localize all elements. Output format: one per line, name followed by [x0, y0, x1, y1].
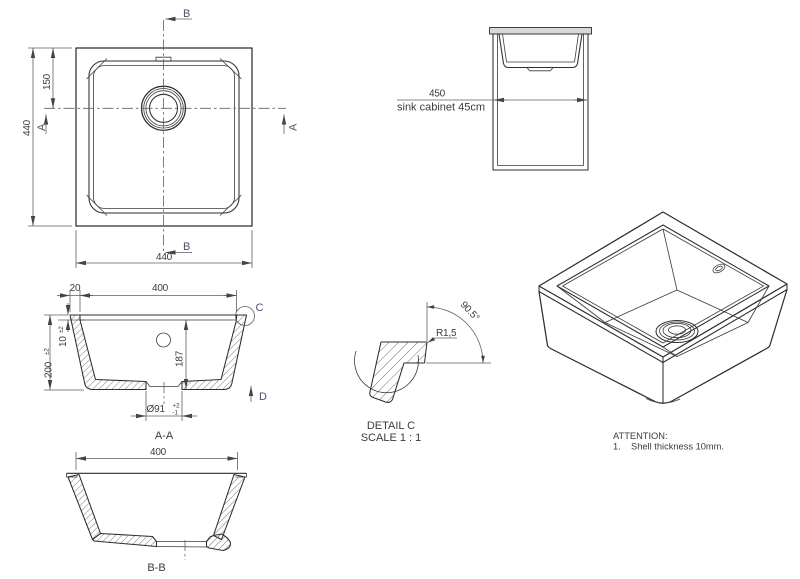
corner-chamfer-line [87, 195, 108, 216]
top-view: B B A A 440 150 440 [22, 8, 300, 268]
view-arrow-d-label: D [259, 391, 267, 403]
dim-shell-thickness: 10 ±2 [58, 303, 69, 347]
view-arrow-d: D [251, 386, 267, 403]
dim-text-20: 20 [70, 283, 81, 294]
corner-chamfer-line [220, 195, 242, 216]
corner-chamfer-line [220, 59, 242, 80]
detail-scale: SCALE 1 : 1 [361, 432, 422, 444]
section-arrow-a-right: A [284, 115, 300, 135]
dim-text-187: 187 [175, 350, 186, 367]
rim-cross-section [370, 342, 427, 402]
radius-callout: R1,5 [428, 328, 457, 343]
section-label-a-right: A [288, 123, 300, 131]
section-label-b-bottom: B [183, 241, 190, 253]
attention-title: ATTENTION: [613, 431, 668, 441]
corner-chamfer-line [87, 59, 108, 80]
dim-text-200: 200 [44, 361, 55, 378]
dim-rim-and-width: 20 400 [57, 283, 237, 312]
cabinet-outer-outline [493, 34, 588, 170]
dim-cabinet-width: 450 sink cabinet 45cm [397, 89, 587, 114]
cabinet-caption: sink cabinet 45cm [397, 102, 485, 114]
countertop [490, 28, 592, 35]
sink-outer-outline [76, 48, 252, 226]
dim-text-400-aa: 400 [152, 283, 169, 294]
dim-text-440-left: 440 [22, 119, 33, 136]
attention-item-number: 1. [613, 442, 621, 452]
drain-plateau-bottom [157, 547, 209, 548]
cabinet-view: 450 sink cabinet 45cm [397, 28, 592, 171]
sink-bowl-outer-profile [499, 34, 582, 68]
dim-text-450: 450 [429, 89, 446, 100]
dim-drain-offset: 150 [42, 48, 53, 108]
drawing-sheet: B B A A 440 150 440 [0, 0, 800, 579]
isometric-view [539, 212, 787, 404]
dim-text-400-bb: 400 [150, 447, 167, 458]
left-wall-section [68, 475, 101, 540]
sink-technical-drawing: B B A A 440 150 440 [0, 0, 800, 579]
left-wall-section [70, 315, 146, 390]
radius-text: R1,5 [436, 328, 457, 339]
dim-drain-diameter: Ø91 +2 -1 [131, 391, 197, 421]
overflow-hole [157, 333, 171, 347]
attention-item-text: Shell thickness 10mm. [631, 442, 724, 452]
dim-tol-drain-minus: -1 [173, 410, 179, 417]
section-bb-view: 400 B-B [67, 447, 247, 574]
dim-overall-width: 440 [76, 230, 252, 268]
bowl-rim-inner-edge [94, 66, 235, 209]
bowl-rim-outer-edge [89, 61, 239, 213]
section-aa-title: A-A [155, 430, 174, 442]
sink-bowl-inner-profile [503, 34, 579, 62]
detail-title: DETAIL C [367, 420, 415, 432]
section-bb-title: B-B [147, 562, 165, 574]
section-label-b-top: B [183, 8, 190, 20]
section-arrow-b-top: B [166, 8, 193, 20]
dim-tol-10: ±2 [58, 326, 65, 333]
bowl-corner-edge [663, 229, 677, 290]
section-arrow-a-left: A [36, 115, 48, 135]
rim-outer-edge [539, 212, 787, 357]
detail-c-view: 90.5° R1,5 DETAIL C SCALE 1 : 1 [355, 300, 491, 444]
right-wall-section [182, 315, 247, 390]
detail-callout-label: C [256, 302, 264, 314]
dim-inner-depth: 187 [175, 320, 187, 389]
bowl-corner-edge [557, 286, 605, 323]
dim-width-bb: 400 [76, 447, 238, 470]
bottom-left-section [93, 534, 157, 547]
dim-text-drain: Ø91 [147, 404, 166, 415]
section-aa-view: 20 400 200 ±2 10 ±2 187 Ø91 +2 -1 [44, 283, 268, 442]
angle-text: 90.5° [458, 300, 482, 324]
dim-tol-drain-plus: +2 [173, 403, 181, 410]
dim-text-150: 150 [42, 73, 53, 90]
dim-text-440-bottom: 440 [156, 252, 173, 263]
dim-text-10: 10 [58, 336, 69, 347]
dim-tol-200: ±2 [44, 348, 51, 355]
right-wall-section [214, 475, 246, 540]
attention-note: ATTENTION: 1. Shell thickness 10mm. [613, 431, 724, 452]
section-label-a-left: A [36, 123, 48, 131]
